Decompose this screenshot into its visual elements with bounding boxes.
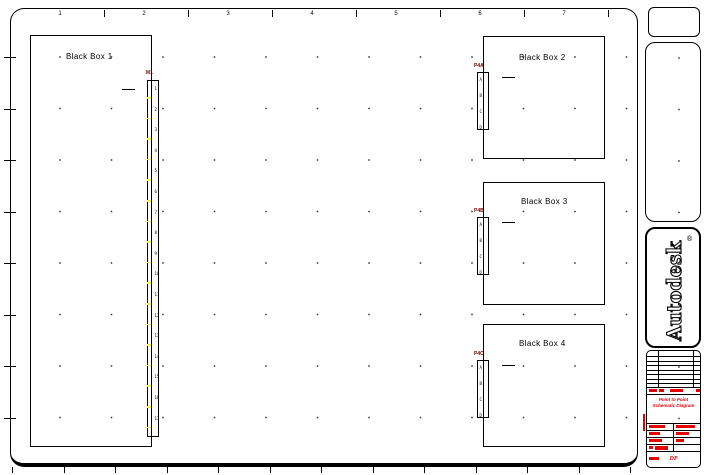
red-text-bar — [676, 439, 684, 442]
pin-label: 9 — [155, 252, 157, 256]
red-text-bar — [676, 432, 689, 435]
black-box-4-label: Black Box 4 — [519, 339, 566, 348]
bottom-zone-tick — [270, 467, 271, 473]
pin-label: C — [480, 398, 482, 402]
bottom-zone-tick — [424, 467, 425, 473]
autodesk-logo-text: Autodesk — [662, 240, 686, 342]
black-box-2-label: Black Box 2 — [519, 53, 566, 62]
bottom-zone-tick — [321, 467, 322, 473]
pin-label: 16 — [155, 396, 160, 400]
red-text-bar — [649, 389, 657, 392]
pin-label: C — [480, 110, 482, 114]
cad-drawing-sheet: 1 2 3 4 5 6 7 Black Box 1 M1 12345678910… — [0, 0, 704, 475]
wire-stub-4 — [502, 365, 515, 366]
connector-3: ABCD — [477, 217, 489, 275]
left-zone-tick — [4, 109, 16, 110]
pin-tick — [147, 241, 151, 243]
connector-2-label: P4A — [474, 64, 484, 69]
pin-tick — [147, 385, 151, 387]
red-text-bar — [655, 446, 668, 450]
bottom-zone-tick — [115, 467, 116, 473]
connector-2: ABCD — [477, 72, 489, 130]
autodesk-logo-panel: Autodesk ® — [645, 227, 701, 348]
connector-4-label: P4C — [474, 352, 484, 357]
red-text-bar — [676, 425, 695, 428]
ruler-zone-number: 5 — [391, 11, 401, 18]
wire-stub-1 — [122, 89, 135, 90]
pin-label: 7 — [155, 211, 157, 215]
bottom-zone-tick — [527, 467, 528, 473]
top-zone-tick — [188, 10, 189, 17]
connector-1-label: M1 — [146, 71, 153, 76]
pin-tick — [147, 262, 151, 264]
pin-label: 1 — [155, 87, 157, 91]
bottom-zone-tick — [373, 467, 374, 473]
title-block-line — [647, 394, 700, 395]
wire-stub-2 — [502, 77, 515, 78]
drawing-description-line2: Schematic Diagram — [647, 403, 700, 409]
pin-tick — [147, 282, 151, 284]
left-zone-tick — [4, 263, 16, 264]
side-panel-large — [645, 42, 701, 222]
top-zone-tick — [356, 10, 357, 17]
connector-3-label: P4B — [474, 209, 484, 214]
pin-label: D — [480, 414, 482, 418]
pin-label: 12 — [155, 314, 160, 318]
pin-tick — [147, 303, 151, 305]
pin-label: C — [480, 255, 482, 259]
title-block: Point to Point Schematic Diagram DP — [646, 350, 701, 468]
bottom-zone-tick — [579, 467, 580, 473]
pin-tick — [147, 200, 151, 202]
revision-table-divider — [658, 351, 659, 387]
pin-label: 5 — [155, 169, 157, 173]
wire-stub-3 — [502, 222, 515, 223]
pin-label: 15 — [155, 375, 160, 379]
pin-label: 4 — [155, 149, 157, 153]
pin-label: 17 — [155, 417, 160, 421]
pin-label: D — [480, 126, 482, 130]
pin-tick — [147, 138, 151, 140]
connector-1: 1234567891011121314151617 — [147, 80, 159, 437]
ruler-zone-number: 1 — [55, 11, 65, 18]
pin-tick — [147, 179, 151, 181]
left-zone-tick — [4, 212, 16, 213]
red-text-bar — [649, 425, 665, 428]
pin-label: 14 — [155, 355, 160, 359]
ruler-zone-number: 6 — [475, 11, 485, 18]
left-zone-tick — [4, 366, 16, 367]
sheet-code: DP — [647, 456, 700, 462]
top-zone-tick — [272, 10, 273, 17]
pin-label: 8 — [155, 231, 157, 235]
bottom-zone-tick — [218, 467, 219, 473]
pin-label: 6 — [155, 190, 157, 194]
bottom-zone-tick — [64, 467, 65, 473]
pin-tick — [147, 118, 151, 120]
title-block-divider — [673, 423, 674, 451]
black-box-3-label: Black Box 3 — [521, 197, 568, 206]
pin-tick — [147, 221, 151, 223]
pin-tick — [147, 159, 151, 161]
red-text-bar — [659, 389, 664, 392]
title-block-line — [647, 451, 700, 452]
pin-label: B — [480, 94, 482, 98]
title-block-line — [647, 387, 700, 388]
side-panel-small — [648, 7, 700, 37]
pin-tick — [147, 344, 151, 346]
pin-label: A — [480, 78, 482, 82]
bottom-zone-tick — [167, 467, 168, 473]
registered-mark: ® — [686, 235, 693, 243]
red-text-bar — [649, 439, 662, 442]
revision-marker — [643, 414, 645, 431]
red-text-bar — [696, 389, 700, 392]
pin-label: B — [480, 239, 482, 243]
pin-tick — [147, 427, 151, 429]
drawing-description: Point to Point Schematic Diagram — [647, 397, 700, 408]
red-text-bar — [649, 432, 660, 435]
ruler-zone-number: 7 — [559, 11, 569, 18]
pin-label: 13 — [155, 334, 160, 338]
pin-label: A — [480, 223, 482, 227]
black-box-1-label: Black Box 1 — [66, 52, 113, 61]
revision-table-divider — [693, 351, 694, 387]
pin-tick — [147, 406, 151, 408]
bottom-zone-tick — [630, 467, 631, 473]
pin-label: 11 — [155, 293, 160, 297]
autodesk-logo: Autodesk ® — [647, 229, 699, 346]
red-text-bar — [649, 446, 653, 449]
left-zone-tick — [4, 160, 16, 161]
connector-4: ABCD — [477, 360, 489, 418]
black-box-1 — [30, 35, 152, 447]
red-text-bar — [670, 389, 683, 392]
pin-tick — [147, 365, 151, 367]
ruler-zone-number: 2 — [139, 11, 149, 18]
top-zone-tick — [524, 10, 525, 17]
left-zone-tick — [4, 315, 16, 316]
pin-label: B — [480, 382, 482, 386]
pin-label: A — [480, 366, 482, 370]
pin-label: 10 — [155, 272, 160, 276]
top-zone-tick — [608, 10, 609, 17]
bottom-zone-tick — [12, 467, 13, 473]
pin-tick — [147, 324, 151, 326]
bottom-zone-tick — [476, 467, 477, 473]
ruler-zone-number: 3 — [223, 11, 233, 18]
top-zone-tick — [104, 10, 105, 17]
pin-label: 3 — [155, 128, 157, 132]
pin-label: D — [480, 271, 482, 275]
ruler-zone-number: 4 — [307, 11, 317, 18]
left-zone-tick — [4, 57, 16, 58]
top-zone-tick — [440, 10, 441, 17]
left-zone-tick — [4, 418, 16, 419]
pin-tick — [147, 97, 151, 99]
pin-label: 2 — [155, 108, 157, 112]
